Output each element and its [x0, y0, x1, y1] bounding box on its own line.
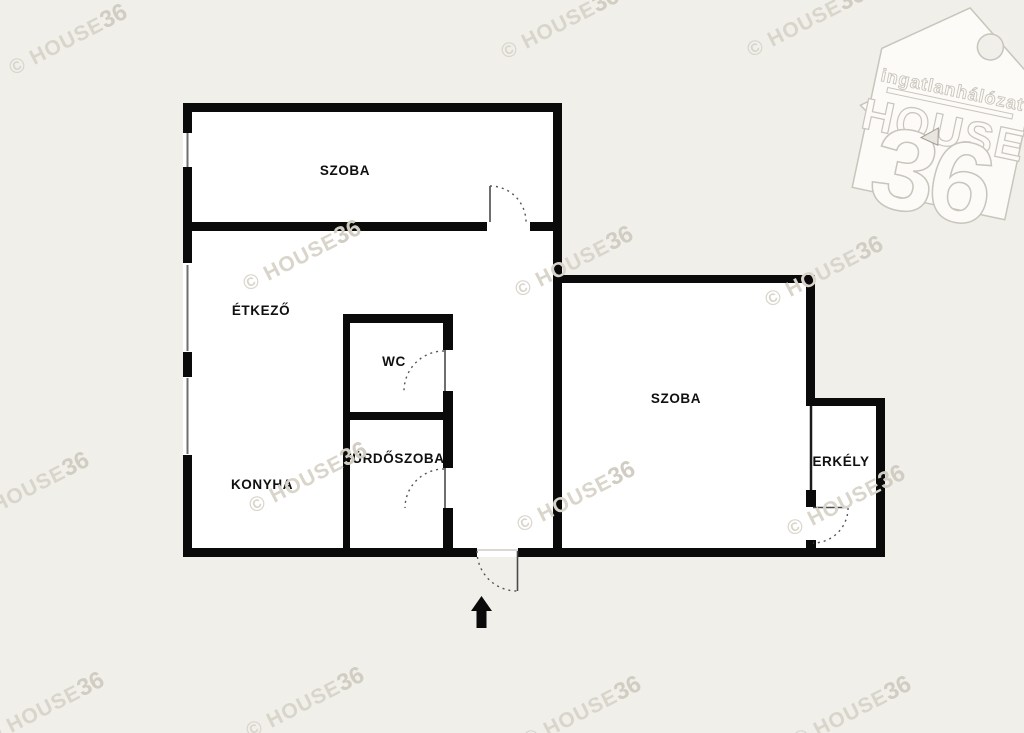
- wall-wcblock-right-seg3: [443, 508, 453, 548]
- wall-wc-bath-divider: [343, 412, 453, 420]
- label-konyha: KONYHA: [231, 477, 293, 492]
- wall-wcblock-right-seg1: [443, 314, 453, 350]
- wall-balcony-top: [806, 398, 885, 406]
- label-erkely: ERKÉLY: [812, 454, 869, 469]
- wall-wcblock-top: [343, 314, 453, 323]
- label-wc: WC: [382, 354, 406, 369]
- label-etkezo: ÉTKEZŐ: [232, 303, 290, 318]
- wall-left-seg4: [183, 455, 192, 557]
- entrance-arrow: [471, 596, 492, 628]
- balcony-door-jamb-upper: [806, 490, 816, 507]
- wall-wcblock-left: [343, 314, 350, 548]
- right-room-floor: [553, 275, 815, 557]
- balcony-door-jamb-lower: [806, 540, 816, 548]
- floor-plan: SZOBA ÉTKEZŐ WC FÜRDŐSZOBA KONYHA SZOBA …: [0, 0, 1024, 733]
- wall-balcony-right: [876, 398, 885, 557]
- wall-left-seg2: [183, 167, 192, 263]
- wall-rightroom-right: [806, 275, 815, 406]
- wall-bottom-b: [518, 548, 885, 557]
- label-furdoszoba: FÜRDŐSZOBA: [343, 451, 444, 466]
- wall-center-vertical: [553, 103, 562, 557]
- wall-left-seg3: [183, 352, 192, 377]
- wall-rightroom-top: [553, 275, 815, 283]
- wall-left-seg1: [183, 103, 192, 133]
- label-szoba-right: SZOBA: [651, 391, 701, 406]
- wall-bottom-a: [183, 548, 477, 557]
- floorplan-canvas: SZOBA ÉTKEZŐ WC FÜRDŐSZOBA KONYHA SZOBA …: [0, 0, 1024, 733]
- wall-szoba-etkezo-a: [183, 222, 487, 231]
- wall-top: [183, 103, 562, 112]
- label-szoba-top: SZOBA: [320, 163, 370, 178]
- balcony-floor: [806, 398, 885, 557]
